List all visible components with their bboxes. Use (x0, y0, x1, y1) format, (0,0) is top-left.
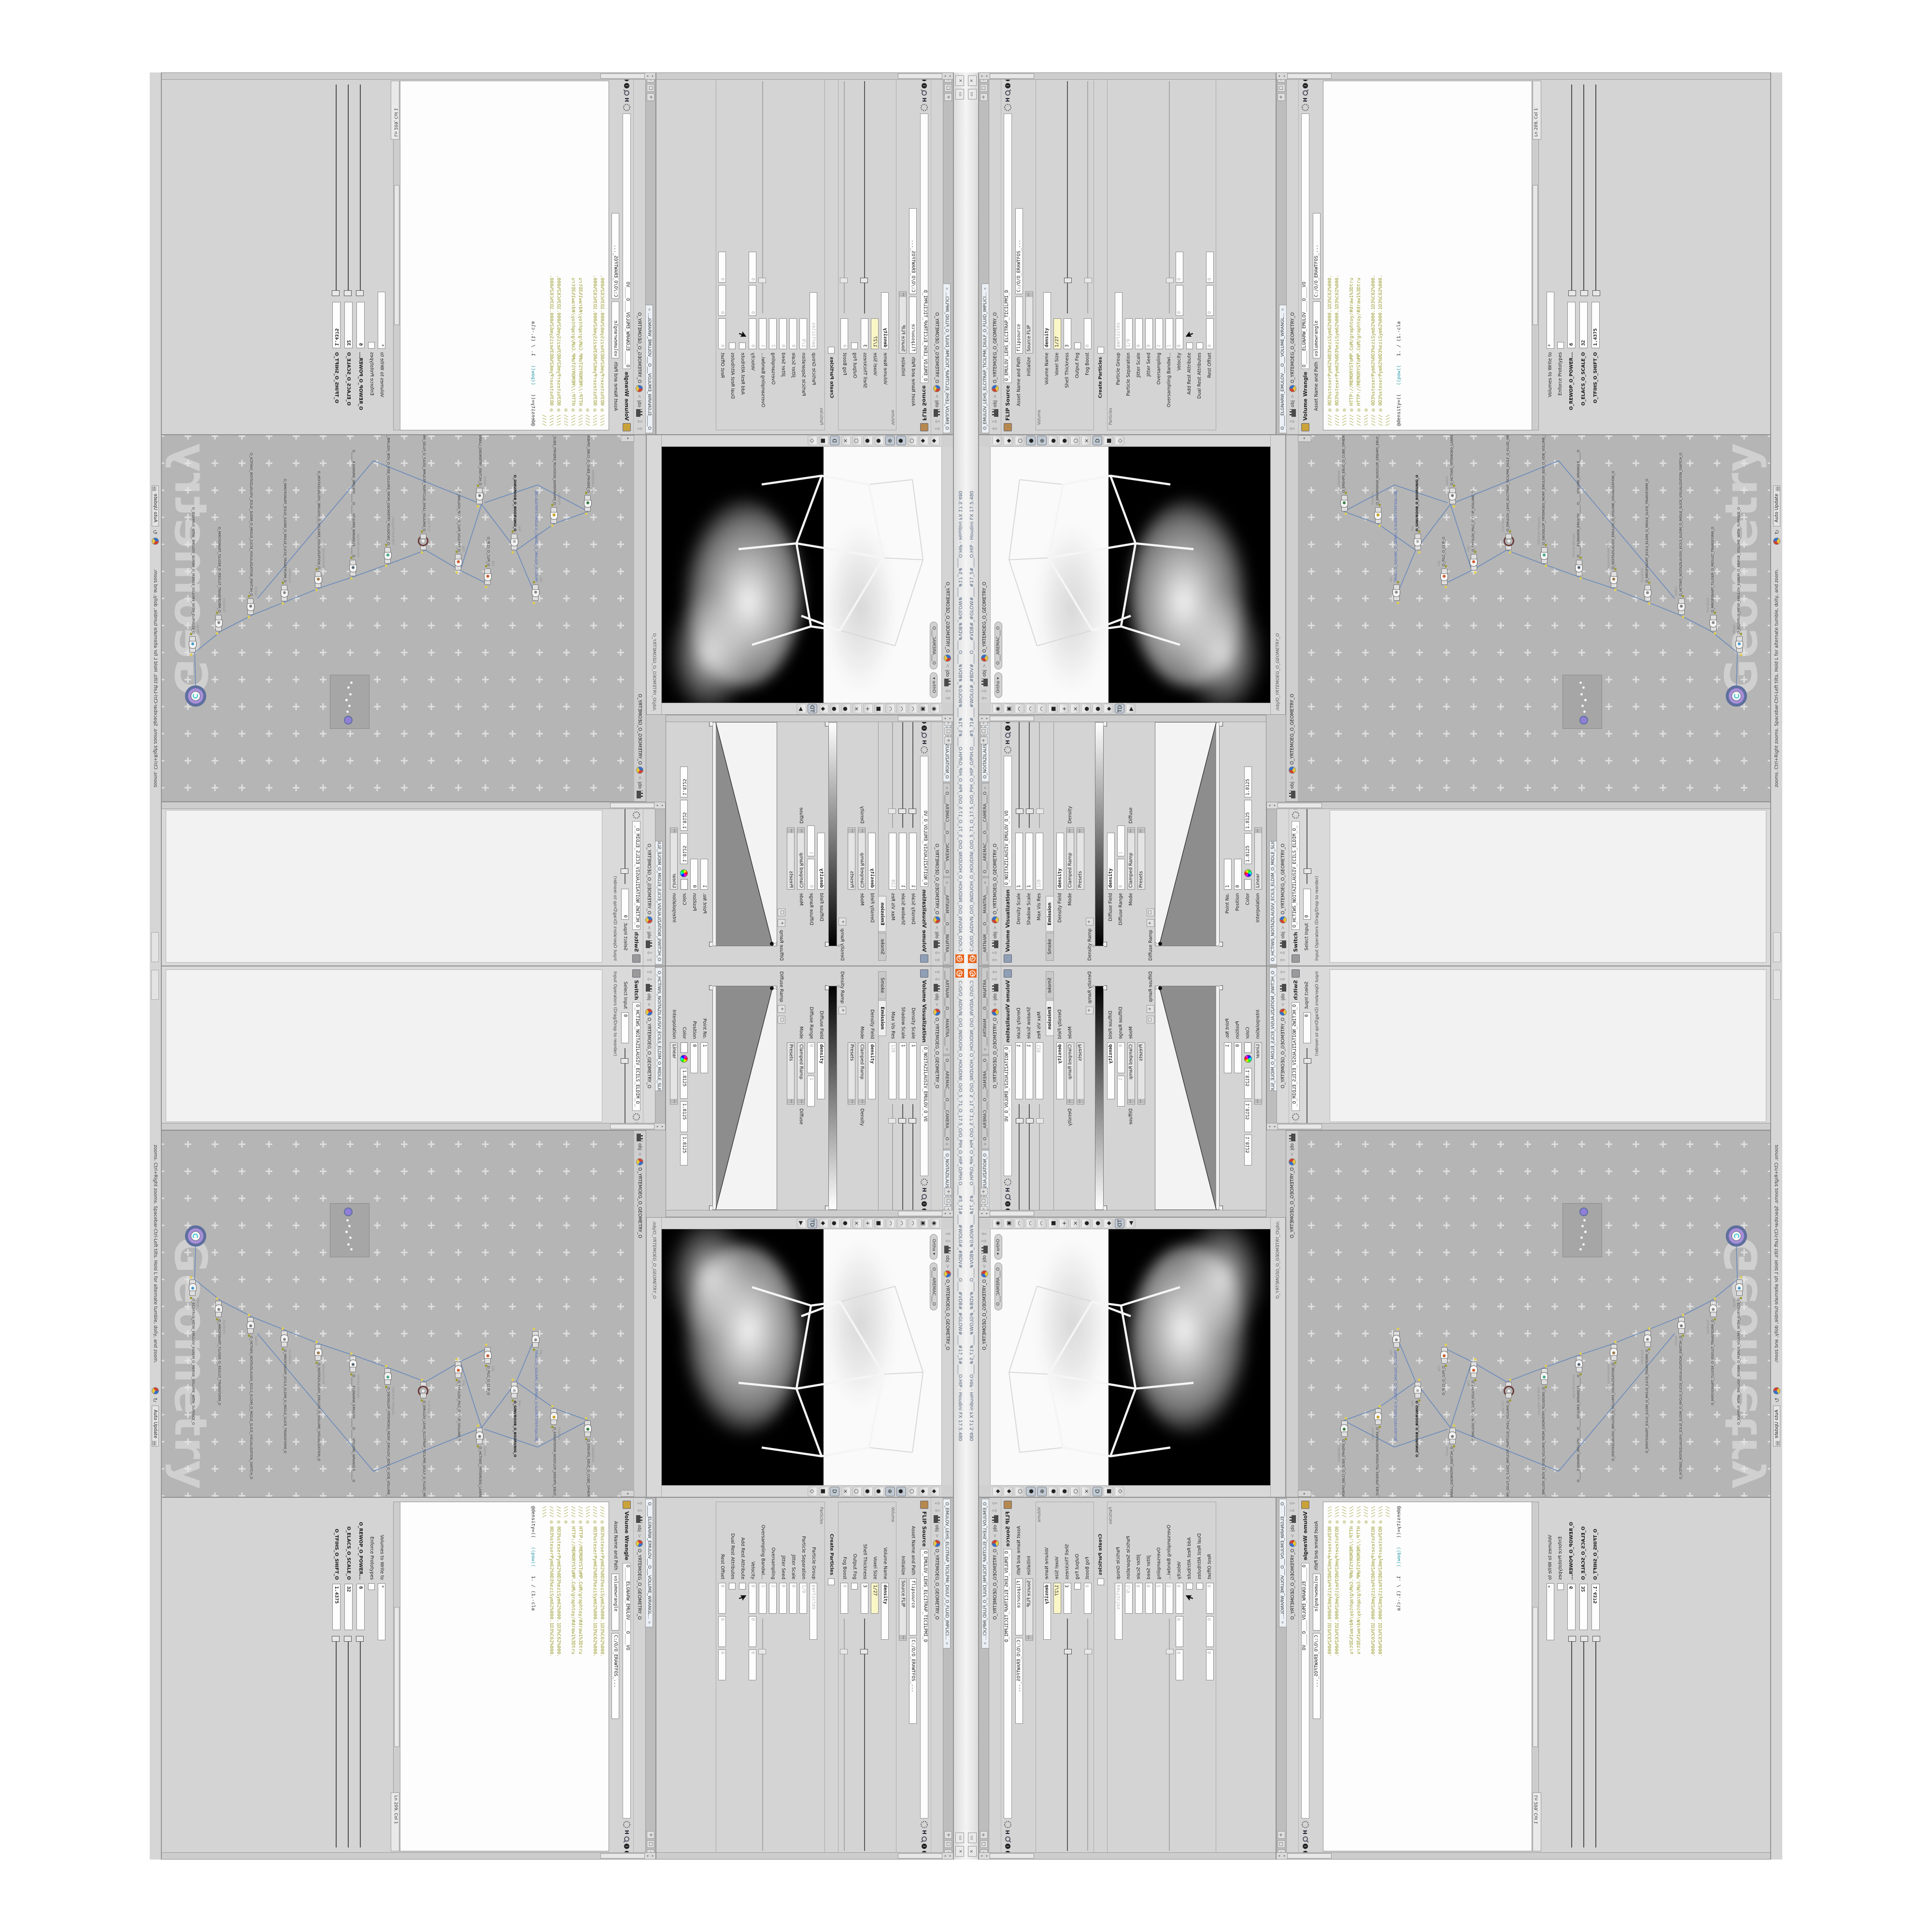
vex-code-editor[interactable]: //// ◎ 0D3%steserPym62%0D3%eziSym62%000.… (395, 81, 609, 430)
search-icon[interactable] (922, 90, 927, 96)
maximize-pane-button[interactable]: □ (1278, 84, 1285, 92)
folder-tab[interactable]: Emission (1046, 1000, 1053, 1036)
node-flag-left[interactable] (1378, 525, 1381, 527)
param-field[interactable]: 0 (1176, 1649, 1183, 1680)
param-slider[interactable] (865, 1619, 866, 1851)
node-flag-left[interactable] (585, 512, 587, 515)
node-flag-left[interactable] (282, 602, 284, 605)
folder-tab[interactable]: Smoke (879, 933, 886, 961)
tool-icon[interactable]: ● (830, 704, 839, 714)
nav-up-icon[interactable]: ⇧ (992, 426, 999, 431)
network-node[interactable]: Transform O_MROFSNART_ECILS_ELDIM_O_MIDL… (1644, 1331, 1650, 1347)
network-node[interactable]: FLIP Source O_EMULOV_LEHS_ELCITRAP_TICIL… (1505, 1382, 1511, 1398)
param-field[interactable]: 0 (808, 859, 815, 890)
checkbox[interactable] (1097, 347, 1104, 354)
tool-icon[interactable]: ● (1081, 1219, 1091, 1228)
param-field[interactable]: 1 (759, 1583, 767, 1614)
houdini-help-icon[interactable]: H (1005, 1830, 1011, 1834)
node-name-field[interactable]: O_NOITAZILAUSIV_EMULOV_O_VO (1004, 756, 1012, 887)
network-node[interactable]: Merge O_ECAFRUS_HTIW_EMULOV_EGREM_O_MERG… (190, 636, 197, 653)
refresh-icon[interactable]: ↻ (152, 530, 159, 535)
obj-context-label[interactable]: obj (935, 994, 940, 1000)
network-canvas[interactable]: Geometry (1298, 435, 1770, 801)
color-g-field[interactable]: 1.8125 (681, 1101, 688, 1132)
ramp-handle[interactable] (709, 942, 713, 947)
close-tab-icon[interactable]: × (983, 786, 987, 790)
param-slider[interactable] (1307, 806, 1307, 884)
delete-ramp-point-button[interactable]: □ (778, 1016, 785, 1023)
breadcrumb-path[interactable]: O_YRTEMOEG_O_GEOMETRY_O (647, 844, 652, 915)
display-option-icon[interactable]: D (830, 1487, 839, 1496)
pane-tab[interactable]: ____ARTNAM____O____MANTRA____× (981, 878, 989, 965)
close-tab-icon[interactable]: × (983, 1048, 987, 1051)
obj-context-label[interactable]: obj (1290, 782, 1295, 789)
display-option-icon[interactable]: ■ (1104, 1487, 1113, 1496)
node-flag-left[interactable] (533, 602, 535, 604)
node-name-field[interactable]: O_____ELGNARW_EMULOV____O____VO (1301, 1563, 1309, 1818)
checkbox[interactable] (1186, 1583, 1193, 1590)
param-field[interactable]: 1 (808, 1076, 815, 1107)
display-option-icon[interactable]: ◇ (1115, 436, 1124, 446)
close-tab-icon[interactable]: × (983, 1142, 987, 1146)
vertical-scrollbar[interactable]: ▴▾ (666, 1210, 953, 1217)
param-field[interactable]: 1/9 (800, 1583, 808, 1614)
camera-pill[interactable]: O___AREMAC___O (994, 1263, 1002, 1310)
houdini-help-icon[interactable]: H (922, 740, 928, 744)
nav-down-icon[interactable]: ⇩ (992, 419, 999, 424)
network-node[interactable]: Volume Wrangle O_____ELGNARW_EMULOV_____… (1575, 560, 1582, 576)
add-ramp-point-button[interactable]: + (838, 918, 846, 925)
breadcrumb-path[interactable]: O_YRTEMOEG_O_GEOMETRY_O (935, 1018, 940, 1089)
param-field[interactable]: 0 (1135, 1583, 1143, 1614)
ramp-handle[interactable] (1103, 722, 1107, 726)
display-option-icon[interactable]: ● (1048, 436, 1058, 446)
param-slider[interactable] (625, 1048, 626, 1126)
display-option-icon[interactable]: ● (896, 1487, 906, 1496)
color-wheel-icon[interactable] (681, 1055, 688, 1063)
network-canvas[interactable]: Geometry (1298, 1131, 1770, 1497)
network-node[interactable]: Transform O_MROFSNART_TLUSER_O_RESULT_TR… (1709, 1301, 1716, 1317)
network-path[interactable]: O_YRTEMOEG_O_GEOMETRY_O (638, 694, 643, 765)
param-slider[interactable] (1307, 1048, 1307, 1126)
node-flag-left[interactable] (1509, 551, 1511, 554)
param-field[interactable]: Clamped Ramp (858, 1042, 866, 1105)
node-flag-left[interactable] (1378, 1405, 1381, 1407)
auto-update-dropdown[interactable]: Auto Update (152, 1406, 159, 1447)
close-tab-icon[interactable]: × (647, 308, 652, 312)
param-slider[interactable] (1067, 1619, 1068, 1851)
close-tab-icon[interactable]: × (945, 1642, 949, 1645)
ramp-marker-icon[interactable]: ▽ (836, 985, 840, 987)
breadcrumb-path[interactable]: O_YRTEMOEG_O_GEOMETRY_O (982, 1279, 987, 1350)
network-node[interactable]: Transform O_MROFSNART_TLUSER_O_RESULT_TR… (216, 615, 223, 631)
param-field[interactable]: 2 (769, 1583, 777, 1614)
node-flag-left[interactable] (1474, 1358, 1477, 1361)
search-icon[interactable] (1005, 1194, 1010, 1199)
param-field[interactable]: density (881, 292, 889, 349)
close-tab-icon[interactable]: × (945, 287, 949, 290)
title-bar[interactable]: C:/O/O_AIDIVN_O/O_INIDUOH_O_HOUDINI_O/O_… (953, 72, 966, 966)
param-field[interactable]: 0 (780, 1583, 787, 1614)
display-option-icon[interactable]: ◇ (808, 1487, 817, 1496)
nav-up-icon[interactable]: ⇧ (934, 969, 941, 975)
houdini-help-icon[interactable]: H (1005, 1188, 1011, 1192)
color-r-field[interactable]: 1.8125 (1244, 1068, 1252, 1099)
tool-icon[interactable]: TD (1115, 1219, 1124, 1228)
param-field[interactable]: 1 (1117, 825, 1125, 856)
node-name-field[interactable]: O_HCTIWS_NOITAZILAUSIV_ECILS_ELDIM_O_ (1292, 1002, 1300, 1110)
vertical-scrollbar[interactable]: ▴▾ (1267, 802, 1770, 809)
param-field[interactable]: 6 (1567, 302, 1576, 348)
ramp-marker-icon[interactable]: ▽ (1154, 942, 1158, 945)
checkbox[interactable] (1557, 1583, 1564, 1590)
param-field[interactable]: 32 (1579, 1584, 1588, 1630)
pane-tab[interactable]: ____ARTNAM____O____MANTRA____× (981, 967, 989, 1054)
pane-tab[interactable]: O_____ELGNARW_EMULOV___O___VOLUME_WRANGL… (646, 1499, 653, 1627)
tool-icon[interactable]: ◠ (1026, 1219, 1036, 1228)
tool-icon[interactable]: ▣ (919, 1219, 928, 1228)
close-tab-icon[interactable]: × (945, 786, 949, 790)
pane-tab[interactable]: O_HCTIWS_NOITAZILAUSIV_ECILS_ELDIM_O_MID… (1269, 841, 1277, 965)
network-node[interactable]: Clip O_PILC_O_CLIP_O (1440, 568, 1447, 585)
param-slider[interactable] (1087, 1619, 1088, 1851)
display-option-icon[interactable]: ● (896, 436, 906, 446)
vertical-scrollbar[interactable]: ▴▾ (162, 1852, 655, 1859)
tool-icon[interactable]: ◠ (1037, 1219, 1047, 1228)
gear-icon[interactable] (1292, 1113, 1299, 1121)
add-ramp-point-button[interactable]: + (778, 1005, 785, 1013)
color-wheel-icon[interactable] (1244, 1055, 1252, 1063)
cook-mode-icon[interactable] (152, 538, 159, 545)
param-field[interactable]: 1 (808, 825, 815, 856)
param-field[interactable]: Linear (670, 827, 678, 890)
tool-icon[interactable]: ◆ (1104, 704, 1113, 714)
node-flag-left[interactable] (1682, 1314, 1684, 1316)
density-ramp-gradient[interactable]: ▽ (828, 986, 837, 1210)
volumes-field[interactable]: * (378, 292, 386, 349)
param-field[interactable]: 32 (1579, 302, 1588, 348)
tool-icon[interactable]: ● (1093, 704, 1102, 714)
node-flag-left[interactable] (1579, 1352, 1582, 1355)
gear-icon[interactable] (624, 104, 631, 111)
node-flag-left[interactable] (485, 1344, 487, 1346)
tool-icon[interactable]: ▣ (1004, 704, 1013, 714)
param-field[interactable]: 0 (790, 318, 797, 349)
network-node[interactable]: FLIP Source O_EMULOV_LEHS_ELCITRAP_TICIL… (1505, 534, 1511, 550)
param-field[interactable]: 1/27 (1053, 318, 1061, 349)
gear-icon[interactable] (921, 746, 928, 753)
param-field[interactable]: C:/O/O_ERAWTFOS_... (909, 208, 917, 294)
param-field[interactable]: density (868, 833, 876, 890)
network-node[interactable]: Clip O_EMULOV_PILC_O_CLIP_VOLUME_O (455, 1362, 462, 1378)
node-name-field[interactable]: O_NOITAZILAUSIV_EMULOV_O_VO (1004, 1045, 1012, 1176)
nav-up-icon[interactable]: ⇧ (1279, 957, 1287, 963)
tool-icon[interactable]: ▶ (796, 704, 806, 714)
param-field[interactable]: 0 (1234, 859, 1242, 890)
node-name-field[interactable]: O_HCTIWS_NOITAZILAUSIV_ECILS_ELDIM_O_ (1292, 821, 1300, 929)
network-node[interactable]: VDB from Polygons O_SNOGILOP_YRTEMOEG_MO… (1540, 1368, 1547, 1385)
display-option-icon[interactable]: × (1081, 1487, 1091, 1496)
tool-icon[interactable]: ◠ (1026, 704, 1036, 714)
gear-icon[interactable] (624, 1821, 631, 1828)
param-field[interactable]: 0 (1117, 1042, 1125, 1073)
param-field[interactable]: 0 (808, 1042, 815, 1073)
node-flag-left[interactable] (315, 589, 318, 591)
param-slider[interactable] (903, 1104, 904, 1213)
display-option-icon[interactable]: ◆ (930, 436, 939, 446)
close-tab-icon[interactable]: × (945, 881, 949, 884)
ramp-handle[interactable] (1219, 942, 1223, 947)
breadcrumb-path[interactable]: O_YRTEMOEG_O_GEOMETRY_O (993, 1018, 998, 1089)
ramp-handle[interactable] (1103, 942, 1107, 947)
color-b-field[interactable]: 1.8125 (1244, 1135, 1252, 1165)
param-field[interactable]: 3 (1064, 1583, 1071, 1614)
pane-tab[interactable]: ____ARTNAM____O____MANTRA____× (943, 967, 951, 1054)
param-field[interactable]: 0 (841, 318, 849, 349)
obj-context-label[interactable]: obj (1280, 932, 1286, 938)
param-field[interactable]: Density (1067, 805, 1074, 825)
checkbox[interactable] (369, 342, 375, 349)
asset-name-field[interactable]: volumewrangle (1313, 301, 1321, 358)
close-tab-icon[interactable]: × (945, 1048, 949, 1051)
maximize-pane-button[interactable]: □ (944, 727, 952, 735)
node-flag-left[interactable] (216, 632, 218, 635)
node-name-field[interactable]: O_NOITAZILAUSIV_EMULOV_O_VO (921, 1045, 929, 1176)
gear-icon[interactable] (1302, 1821, 1309, 1828)
display-option-icon[interactable]: ■ (1104, 436, 1113, 446)
breadcrumb-path[interactable]: O_YRTEMOEG_O_GEOMETRY_O (637, 1549, 642, 1620)
obj-context-label[interactable]: obj (993, 994, 998, 1000)
param-slider[interactable] (1067, 81, 1068, 313)
pin-pane-button[interactable]: + (980, 737, 988, 744)
tool-icon[interactable]: ▶ (796, 1219, 806, 1228)
checkbox[interactable] (852, 1583, 858, 1590)
display-option-icon[interactable]: ○ (908, 436, 917, 446)
camera-pill[interactable]: Ortho ▾ (930, 672, 938, 698)
density-ramp-gradient[interactable]: ▽ (1095, 722, 1104, 946)
param-field[interactable]: Clamped Ramp (1127, 1042, 1135, 1105)
tool-icon[interactable]: + (863, 704, 873, 714)
checkbox[interactable] (852, 342, 858, 349)
node-flag-left[interactable] (1345, 1417, 1347, 1420)
param-field[interactable]: density (818, 833, 825, 890)
display-option-icon[interactable]: ⊕ (1037, 436, 1047, 446)
network-node[interactable]: Clip O_EMULOV_PILC_O_CLIP_VOLUME_O (455, 554, 462, 570)
tool-icon[interactable]: TD (1115, 704, 1124, 714)
tool-icon[interactable]: + (1059, 1219, 1069, 1228)
display-flag-node[interactable] (1726, 1225, 1747, 1247)
network-node[interactable]: Clip O_PILC_O_CLIP_O (485, 568, 492, 585)
param-field[interactable]: 0 (1303, 889, 1311, 920)
display-option-icon[interactable]: ● (1048, 1487, 1058, 1496)
checkbox[interactable] (1074, 1583, 1081, 1590)
param-field[interactable]: flipsource (909, 297, 917, 354)
refresh-icon[interactable]: ↻ (1774, 1397, 1780, 1402)
info-icon[interactable]: i (625, 1844, 630, 1849)
param-field[interactable]: 0 (622, 889, 629, 920)
search-icon[interactable] (625, 1836, 630, 1842)
checkbox[interactable] (1557, 342, 1564, 349)
ramp-handle[interactable] (825, 722, 829, 726)
viewport-canvas[interactable]: Ortho ▾O___AREMAC___O (661, 1229, 941, 1485)
vertical-scrollbar[interactable]: ▴▾ (162, 73, 655, 80)
color-r-field[interactable]: 1.8125 (681, 1068, 688, 1099)
param-field[interactable]: density (1107, 1042, 1115, 1099)
pane-tab[interactable]: O_HCTIWS_NOITAZILAUSIV_ECILS_ELDIM_O_MID… (1269, 967, 1277, 1091)
checkbox[interactable] (1186, 342, 1193, 349)
param-field[interactable]: 0 (790, 1583, 797, 1614)
param-field[interactable]: 0 (1206, 1583, 1214, 1614)
param-field[interactable]: 6 (1567, 1584, 1576, 1630)
network-node[interactable]: PolyWire O_EMARFERIW_NOGYLOP_EREHPS_EBUC… (551, 1408, 558, 1425)
network-node[interactable]: Transform O_MROFSNART_ECILS_ELDIM_O_MIDL… (1644, 585, 1650, 601)
param-field[interactable]: 32 (344, 302, 353, 348)
param-field[interactable]: Presets (1077, 827, 1084, 890)
nav-up-icon[interactable]: ⇧ (646, 969, 653, 975)
gear-icon[interactable] (1302, 104, 1309, 111)
display-option-icon[interactable]: ● (874, 1487, 884, 1496)
param-field[interactable]: Presets (848, 1042, 856, 1105)
param-field[interactable]: 1.4375 (332, 302, 341, 348)
network-node[interactable]: VDB from Polygons O_SNOGILOP_YRTEMOEG_MO… (385, 1368, 392, 1385)
vertical-scrollbar[interactable]: ▴▾ (1267, 1123, 1770, 1130)
param-field[interactable]: 0 (1176, 285, 1183, 316)
camera-pill[interactable]: Ortho ▾ (994, 1234, 1002, 1260)
network-node[interactable]: File TRIALS.O_SQUARC_O_GENJS1_0.SLIDIRT.… (533, 1331, 540, 1348)
display-option-icon[interactable]: D (1093, 436, 1102, 446)
pin-pane-button[interactable]: + (944, 737, 952, 744)
param-field[interactable]: 0 (749, 318, 757, 349)
color-swatch[interactable] (681, 1042, 688, 1053)
node-name-field[interactable]: O_EMULOV_LEHS_ELCITRAP_TICILPMI_D (1004, 114, 1012, 383)
close-tab-icon[interactable]: × (983, 881, 987, 884)
pane-tab[interactable]: O____AREMAC____O____CAMERA____O× (943, 783, 951, 877)
param-field[interactable]: 0 (1206, 318, 1214, 349)
maximize-pane-button[interactable]: □ (980, 84, 988, 92)
houdini-help-icon[interactable]: H (922, 1830, 928, 1834)
node-name-field[interactable]: O_____ELGNARW_EMULOV____O____VO (623, 114, 631, 369)
param-slider[interactable] (1019, 719, 1020, 828)
param-field[interactable]: 0 (1206, 1649, 1214, 1680)
param-slider[interactable] (1029, 1104, 1030, 1213)
tool-icon[interactable]: TD (808, 704, 817, 714)
obj-context-label[interactable]: obj (982, 1255, 987, 1262)
tool-icon[interactable]: ■ (874, 704, 884, 714)
pin-pane-button[interactable]: + (647, 93, 654, 101)
param-slider[interactable] (1583, 1636, 1584, 1847)
asset-name-field[interactable]: volumewrangle (612, 1574, 620, 1631)
tool-icon[interactable]: ■ (1048, 1219, 1058, 1228)
search-icon[interactable] (625, 90, 630, 96)
tool-icon[interactable]: ◉ (930, 1219, 939, 1228)
nav-up-icon[interactable]: ⇧ (1289, 1501, 1296, 1506)
gear-icon[interactable] (1004, 746, 1011, 753)
vex-code-editor[interactable]: //// ◎ 0D3%steserPym62%0D3%eziSym62%000.… (1323, 1502, 1537, 1851)
node-flag-left[interactable] (1648, 602, 1650, 605)
param-field[interactable]: 0 (749, 1616, 757, 1647)
ramp-marker-icon[interactable]: ▽ (836, 945, 840, 947)
display-option-icon[interactable]: ◆ (993, 436, 1002, 446)
tool-icon[interactable]: ▶ (1126, 704, 1136, 714)
vertical-scrollbar[interactable]: ▴▾ (656, 73, 953, 80)
asset-path-field[interactable]: C:/O/O_ERAWTFOS_... (1313, 1633, 1321, 1719)
obj-context-label[interactable]: obj (638, 782, 643, 789)
ramp-handle[interactable] (1219, 722, 1223, 726)
node-name-field[interactable]: O_EMULOV_LEHS_ELCITRAP_TICILPMI_D (1004, 1549, 1012, 1818)
display-option-icon[interactable]: ◆ (930, 1487, 939, 1496)
param-field[interactable]: flipsource (1015, 297, 1023, 354)
search-icon[interactable] (922, 1194, 927, 1199)
param-field[interactable]: 0 (719, 318, 726, 349)
tool-icon[interactable]: ◉ (993, 704, 1002, 714)
nav-down-icon[interactable]: ⇩ (1279, 950, 1287, 955)
node-flag-left[interactable] (1614, 1341, 1617, 1343)
obj-context-label[interactable]: obj (935, 1525, 940, 1532)
close-button[interactable]: × (968, 1846, 977, 1857)
network-node[interactable]: Clip O_PILC_O_CLIP_O (485, 1347, 492, 1364)
param-field[interactable]: 0 (1176, 252, 1183, 283)
ramp-handle[interactable] (1103, 985, 1107, 990)
color-wheel-icon[interactable] (1244, 869, 1252, 877)
obj-context-label[interactable]: obj (993, 1525, 998, 1532)
param-field[interactable]: 128 (1036, 833, 1043, 890)
param-field[interactable]: 1 (899, 1042, 907, 1099)
node-flag-left[interactable] (551, 525, 554, 527)
param-field[interactable]: C:/O/O_ERAWTFOS_... (1015, 208, 1023, 294)
maximize-pane-button[interactable]: □ (980, 727, 988, 735)
nav-up-icon[interactable]: ⇧ (944, 696, 951, 701)
pane-tab[interactable]: O_HCTIWS_NOITAZILAUSIV_ECILS_ELDIM_O_MID… (655, 841, 663, 965)
display-option-icon[interactable]: ● (1059, 1487, 1069, 1496)
delete-ramp-point-button[interactable]: □ (1147, 909, 1154, 916)
tool-icon[interactable]: ◠ (1015, 1219, 1024, 1228)
checkbox[interactable] (729, 342, 736, 349)
param-slider[interactable] (1029, 719, 1030, 828)
nav-up-icon[interactable]: ⇧ (981, 1231, 988, 1236)
obj-context-label[interactable]: obj (637, 400, 642, 407)
display-option-icon[interactable]: ◆ (1004, 436, 1013, 446)
pin-pane-button[interactable]: + (980, 1831, 988, 1839)
nav-down-icon[interactable]: ⇩ (1289, 419, 1296, 424)
display-option-icon[interactable]: ⊕ (1037, 1487, 1047, 1496)
param-slider[interactable] (348, 85, 349, 296)
breadcrumb-path[interactable]: O_YRTEMOEG_O_GEOMETRY_O (993, 1549, 998, 1620)
param-field[interactable]: Presets (1137, 827, 1145, 890)
param-slider[interactable] (893, 1104, 894, 1213)
param-field[interactable]: Source FLIP (899, 1578, 907, 1641)
param-field[interactable]: 1 (701, 859, 709, 890)
breadcrumb-path[interactable]: O_YRTEMOEG_O_GEOMETRY_O (993, 313, 998, 384)
close-tab-icon[interactable]: × (983, 1642, 987, 1645)
network-node[interactable]: an_CubeSphere O_EREHPS_EBUC_O_CUBE_SPHER… (585, 495, 592, 511)
nav-up-icon[interactable]: ⇧ (636, 1501, 643, 1506)
network-node[interactable]: Clip O_EMULOV_PILC_O_CLIP_VOLUME_O (1470, 554, 1477, 570)
network-node[interactable]: FLIP Source O_EMULOV_LEHS_ELCITRAP_TICIL… (421, 1382, 427, 1398)
ramp-handle[interactable] (709, 985, 713, 990)
pin-pane-button[interactable]: + (647, 1831, 654, 1839)
checkbox[interactable] (828, 347, 835, 354)
display-option-icon[interactable]: ○ (852, 436, 862, 446)
node-flag-left[interactable] (1397, 602, 1399, 604)
network-node[interactable]: File TRIALS.O_SQUARC_O_GENJS1_0.SLIDIRT.… (1392, 1331, 1399, 1348)
node-flag-left[interactable] (1714, 632, 1716, 635)
node-name-field[interactable]: O_HCTIWS_NOITAZILAUSIV_ECILS_ELDIM_O_ (633, 821, 641, 929)
display-option-icon[interactable]: ○ (1015, 1487, 1024, 1496)
maximize-pane-button[interactable]: □ (647, 1840, 654, 1848)
checkbox[interactable] (1196, 1583, 1203, 1590)
asset-path-field[interactable]: C:/O/O_ERAWTFOS_... (612, 1633, 620, 1719)
param-field[interactable]: 128 (889, 833, 897, 890)
